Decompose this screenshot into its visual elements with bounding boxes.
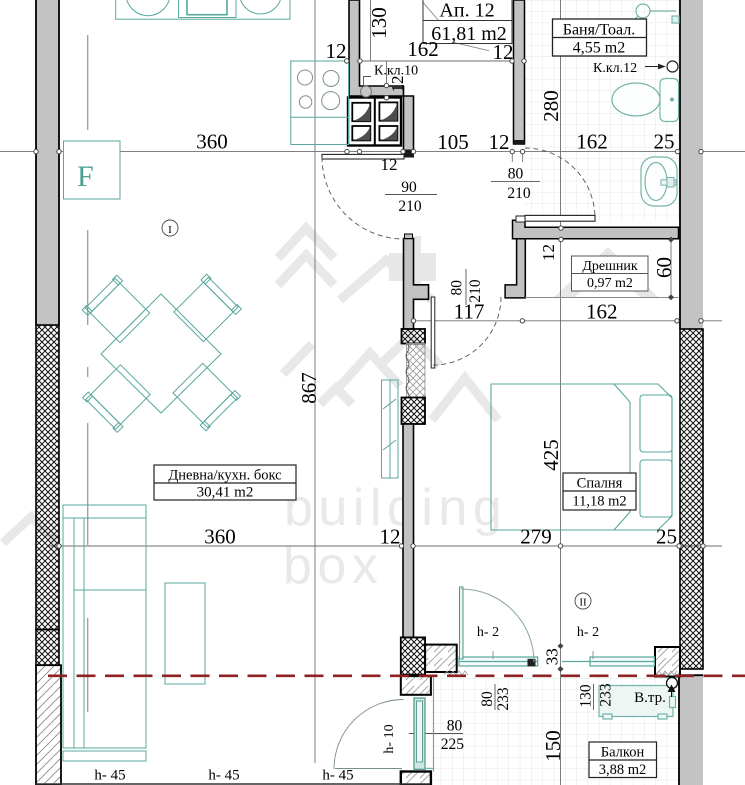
svg-text:105: 105	[437, 130, 469, 154]
svg-text:233: 233	[495, 687, 512, 711]
svg-text:К.кл.12: К.кл.12	[593, 61, 637, 76]
svg-text:12: 12	[489, 130, 510, 154]
svg-text:Ап. 12: Ап. 12	[439, 0, 494, 22]
svg-text:867: 867	[297, 372, 321, 404]
svg-text:425: 425	[539, 439, 563, 471]
svg-text:150: 150	[541, 730, 565, 762]
svg-text:25: 25	[656, 525, 677, 549]
svg-text:33: 33	[543, 648, 562, 665]
svg-text:4,55 m2: 4,55 m2	[573, 40, 625, 57]
svg-text:210: 210	[467, 279, 484, 303]
svg-text:12: 12	[381, 155, 398, 174]
svg-text:Дрешник: Дрешник	[582, 259, 638, 274]
svg-text:Дневна/кухн. бокс: Дневна/кухн. бокс	[168, 468, 281, 484]
svg-text:Балкон: Балкон	[601, 745, 645, 761]
svg-text:130: 130	[578, 684, 595, 708]
svg-text:80: 80	[508, 166, 524, 183]
svg-text:II: II	[579, 597, 587, 609]
svg-text:80: 80	[479, 691, 496, 707]
svg-text:F: F	[77, 160, 94, 193]
svg-text:В.тр.: В.тр.	[634, 690, 666, 706]
svg-text:80: 80	[449, 280, 466, 296]
svg-text:h- 10: h- 10	[382, 724, 397, 753]
svg-text:210: 210	[507, 185, 531, 202]
svg-text:3,88 m2: 3,88 m2	[599, 762, 647, 778]
svg-text:225: 225	[441, 736, 465, 753]
svg-text:I: I	[168, 224, 172, 236]
svg-text:90: 90	[401, 179, 417, 196]
svg-text:12: 12	[539, 244, 558, 261]
svg-text:80: 80	[447, 718, 463, 735]
svg-text:280: 280	[539, 90, 563, 122]
svg-text:130: 130	[367, 7, 391, 39]
svg-text:0,97 m2: 0,97 m2	[587, 276, 633, 291]
svg-text:h- 2: h- 2	[577, 625, 599, 640]
svg-text:Спалня: Спалня	[577, 476, 623, 492]
svg-text:h- 45: h- 45	[322, 768, 353, 784]
svg-text:h- 45: h- 45	[94, 768, 125, 784]
svg-text:162: 162	[576, 130, 608, 154]
svg-text:60: 60	[652, 257, 676, 278]
svg-text:233: 233	[598, 683, 615, 707]
svg-text:162: 162	[586, 300, 618, 324]
svg-text:360: 360	[204, 525, 236, 549]
svg-text:360: 360	[196, 130, 228, 154]
svg-text:279: 279	[520, 525, 552, 549]
svg-text:12: 12	[380, 525, 401, 549]
svg-text:210: 210	[398, 198, 422, 215]
svg-text:h- 45: h- 45	[208, 768, 239, 784]
svg-text:30,41 m2: 30,41 m2	[197, 485, 254, 501]
svg-text:11,18 m2: 11,18 m2	[572, 494, 626, 510]
svg-text:К.кл.10: К.кл.10	[374, 64, 418, 79]
svg-text:Баня/Тоал.: Баня/Тоал.	[563, 22, 635, 39]
svg-text:162: 162	[407, 37, 439, 61]
svg-text:25: 25	[654, 130, 675, 154]
svg-text:12: 12	[326, 39, 347, 63]
svg-text:h- 2: h- 2	[477, 625, 499, 640]
